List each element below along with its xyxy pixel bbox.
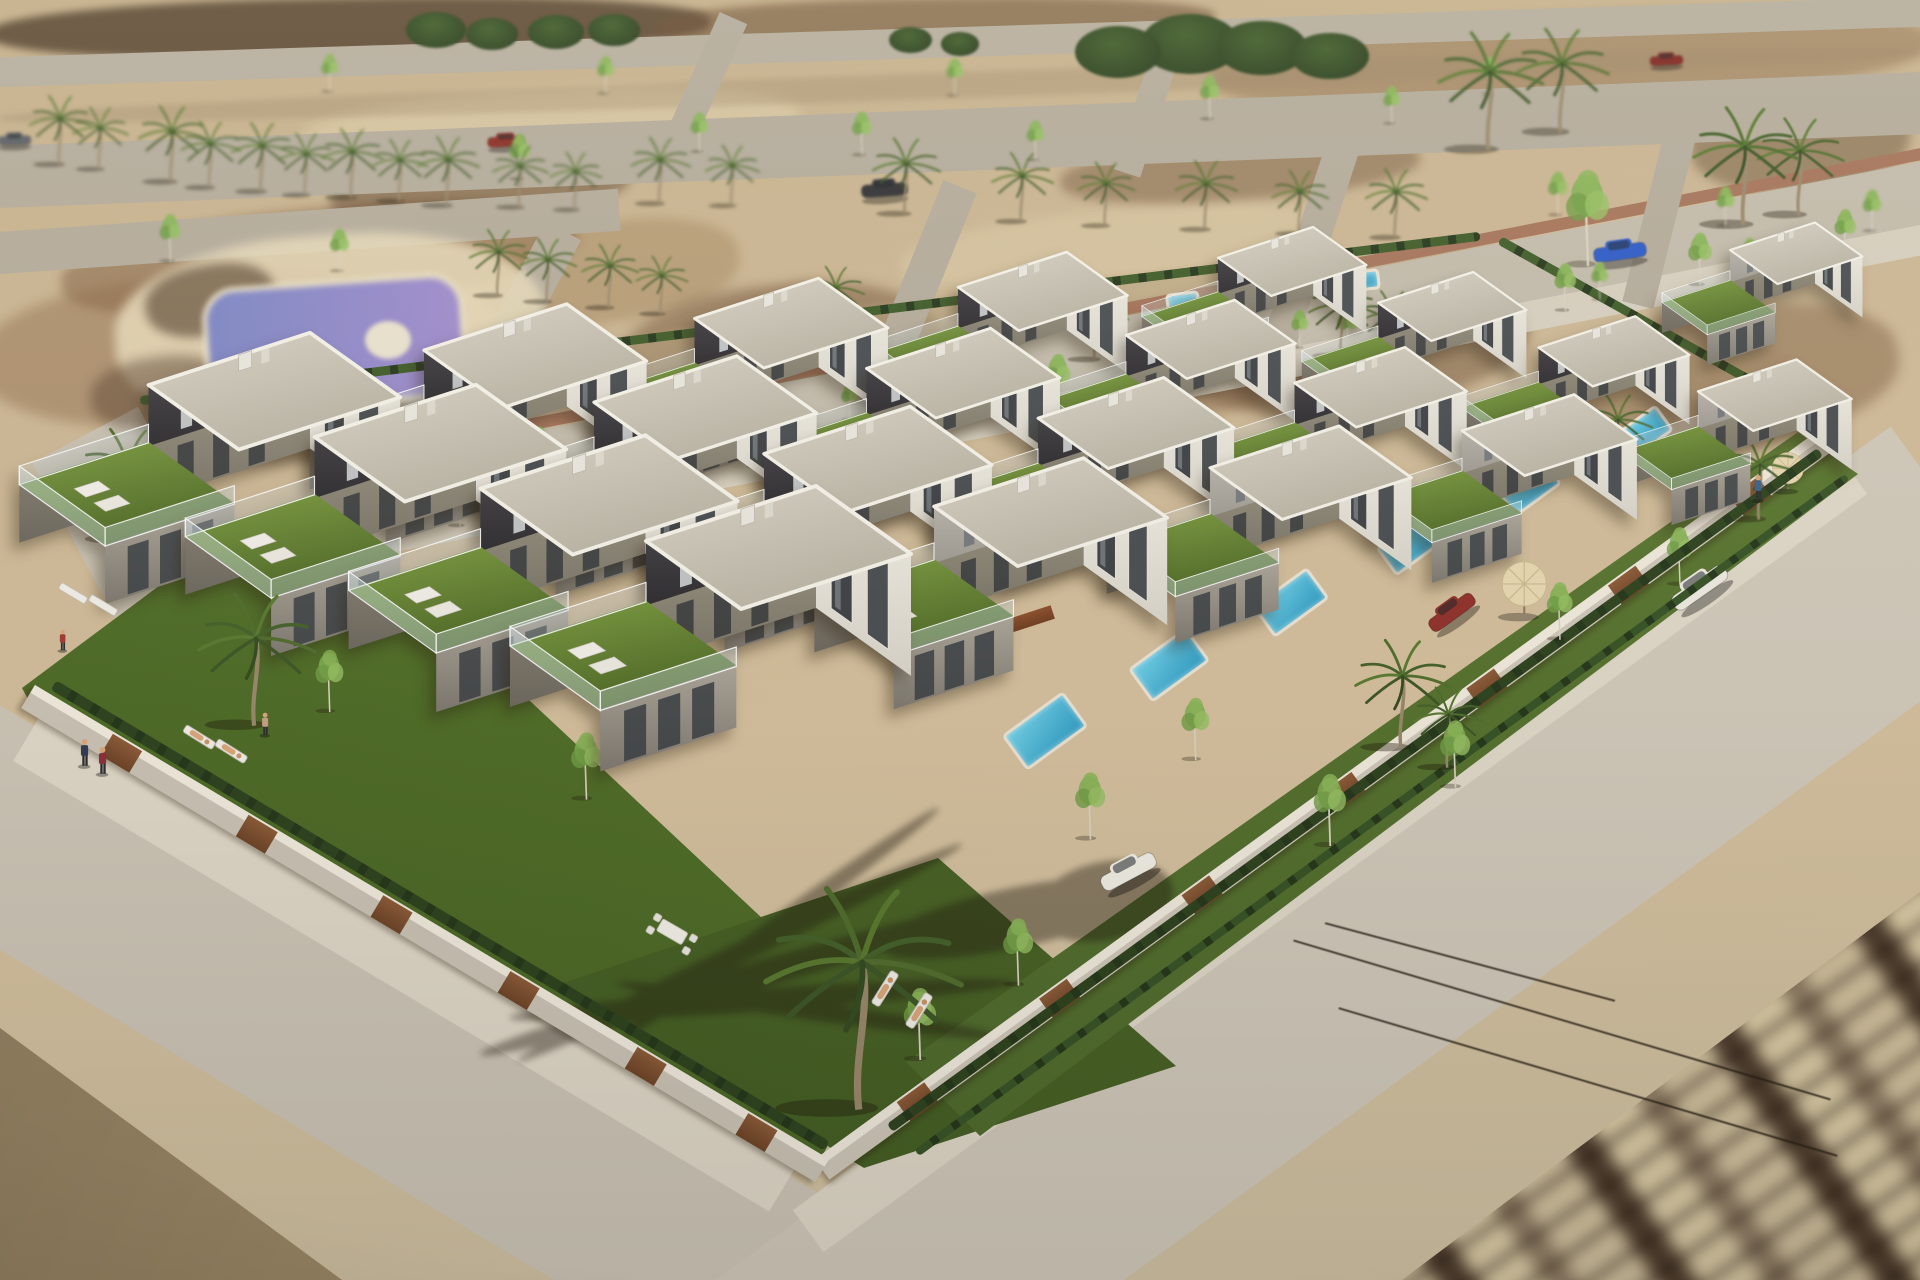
birch-tree	[153, 208, 188, 263]
birch-tree	[1194, 70, 1226, 121]
road	[13, 715, 797, 1212]
road	[0, 189, 621, 276]
bush	[528, 15, 584, 49]
birch-tree	[1066, 764, 1115, 841]
corten-fence	[1001, 605, 1055, 634]
palm-tree	[1356, 165, 1436, 240]
landscape-blob	[182, 390, 417, 474]
birch-tree	[1586, 257, 1614, 301]
villa	[172, 361, 600, 676]
perimeter-wall	[815, 421, 1846, 1179]
palm-tree	[697, 142, 767, 208]
corten-fence	[1386, 483, 1429, 518]
villa	[1294, 258, 1546, 444]
birch-tree	[1548, 257, 1583, 312]
vignette-overlay	[0, 0, 1920, 1280]
palm-tree	[128, 102, 216, 185]
villa	[1363, 378, 1660, 597]
palm-tree	[734, 876, 990, 1116]
palm-tree	[1574, 390, 1662, 473]
birch-tree	[846, 106, 878, 157]
terrain-patch	[897, 188, 1322, 302]
villa	[585, 260, 914, 502]
birch-tree	[316, 49, 344, 93]
palm-tree	[1744, 113, 1856, 218]
lagoon-pool	[200, 271, 470, 415]
garden-lawn	[0, 0, 1920, 1280]
landscape-blob	[382, 358, 559, 441]
birch-tree	[1431, 712, 1480, 789]
palm-tree	[270, 130, 342, 198]
road	[663, 12, 747, 152]
birch-tree	[1450, 270, 1489, 332]
birch-tree	[1187, 322, 1226, 383]
birch-tree	[886, 372, 929, 440]
bush	[466, 18, 518, 49]
power-line	[1338, 1007, 1837, 1157]
birch-tree	[1436, 279, 1464, 323]
sun-lounger	[55, 578, 93, 610]
terrain-patch	[944, 282, 1336, 447]
birch-tree	[1736, 233, 1764, 277]
palm-tree	[862, 134, 950, 217]
birch-tree	[324, 223, 356, 273]
private-pool	[1345, 268, 1381, 293]
private-pool	[1128, 627, 1211, 703]
corten-fence	[1193, 542, 1240, 579]
bush	[588, 14, 640, 45]
villa	[335, 411, 772, 733]
palm-tree	[1263, 167, 1337, 236]
palm-tree	[64, 423, 192, 543]
garden-lawn	[0, 0, 1920, 1280]
birch-tree	[986, 355, 1014, 399]
birch-tree	[524, 421, 556, 471]
hedge	[139, 231, 1480, 404]
villa	[1030, 284, 1318, 496]
road	[0, 71, 1920, 209]
power-lines	[0, 0, 1920, 1280]
private-pool	[1496, 456, 1563, 518]
landscape-blob	[140, 254, 280, 346]
wall-face	[820, 429, 1845, 1180]
villa	[802, 436, 1198, 728]
road	[0, 700, 833, 1280]
birch-tree	[1539, 575, 1581, 641]
corten-wall-panel	[1182, 875, 1223, 914]
corten-wall-panel	[235, 815, 277, 854]
terrain-patch	[608, 268, 952, 452]
birch-tree	[1038, 347, 1079, 411]
birch-tree	[1330, 297, 1366, 354]
corten-wall-panel	[100, 734, 142, 773]
birch-tree	[592, 51, 620, 95]
palm-tree	[484, 142, 556, 210]
palm-tree	[408, 133, 488, 208]
birch-tree	[441, 467, 480, 528]
bush	[1291, 33, 1368, 80]
person	[76, 737, 92, 769]
birch-tree	[1476, 52, 1504, 96]
villa	[1096, 407, 1438, 659]
birch-tree	[1021, 115, 1050, 161]
private-pool	[1165, 290, 1201, 315]
birch-tree	[1681, 226, 1720, 287]
power-line	[1325, 922, 1615, 1002]
palm-tree	[982, 149, 1062, 224]
sun-lounger	[210, 734, 253, 770]
terrain-patch	[0, 260, 425, 440]
birch-tree	[307, 642, 353, 714]
road	[1114, 26, 1187, 177]
villa	[1453, 302, 1710, 491]
palm-tree	[1352, 287, 1432, 362]
villa	[298, 283, 676, 562]
palm-tree	[364, 136, 436, 204]
villa	[6, 309, 434, 624]
road	[378, 160, 1920, 530]
car	[0, 128, 37, 153]
car	[1083, 835, 1174, 910]
terrain-patch	[0, 39, 1920, 132]
road	[383, 145, 1920, 458]
building-facade-stripes	[0, 0, 1920, 1280]
palm-tree	[1677, 101, 1813, 229]
car	[851, 172, 916, 209]
parasol	[1761, 452, 1815, 496]
road	[628, 426, 1920, 1280]
terrain-patch	[298, 77, 802, 183]
hedge	[914, 474, 1849, 1156]
desert-ground	[0, 0, 1920, 1280]
private-pool	[1252, 567, 1330, 639]
road	[0, 0, 1920, 88]
road	[853, 180, 976, 416]
palm-tree	[1712, 432, 1808, 522]
palm-tree	[460, 226, 537, 298]
private-pool	[1612, 404, 1674, 461]
terrain-patch	[1531, 283, 1908, 478]
birch-tree	[1711, 181, 1740, 227]
corten-wall-panel	[370, 895, 412, 934]
pool-complex-deck	[109, 220, 551, 440]
birch-tree	[994, 910, 1043, 987]
bush	[889, 27, 932, 53]
terrain-patch	[328, 147, 632, 233]
birch-tree	[1659, 520, 1701, 586]
palm-tree	[20, 92, 100, 167]
birch-tree	[1542, 166, 1574, 217]
private-pool	[1375, 511, 1447, 577]
birch-tree	[1828, 203, 1863, 258]
birch-tree	[591, 443, 626, 498]
corten-wall-panel	[1039, 979, 1080, 1018]
palm-tree	[622, 134, 699, 206]
bush	[1217, 21, 1307, 76]
perimeter-wall	[21, 685, 829, 1182]
terrain-patch	[1058, 128, 1421, 213]
palm-tree	[511, 235, 585, 304]
palm-tree	[1422, 26, 1558, 154]
terrain-patch	[655, 0, 1216, 51]
villa	[1655, 210, 1880, 376]
birch-tree	[674, 399, 706, 449]
corten-wall-panel	[1324, 772, 1365, 811]
birch-tree	[562, 724, 611, 801]
villa	[1134, 213, 1386, 399]
road	[32, 407, 298, 764]
bush	[1075, 26, 1161, 78]
road	[419, 221, 581, 478]
palm-tree	[172, 118, 249, 190]
villa	[1197, 331, 1490, 547]
bush	[1141, 14, 1240, 74]
palm-tree	[1502, 23, 1622, 136]
parasol	[1486, 561, 1563, 624]
car	[1652, 546, 1747, 631]
villa	[757, 310, 1086, 552]
birch-tree	[1136, 329, 1164, 373]
birch-tree	[941, 53, 969, 97]
scene-objects	[0, 0, 1920, 1280]
terrain-patch	[1183, 257, 1538, 433]
birch-tree	[1553, 158, 1623, 268]
road	[1260, 138, 1360, 358]
person	[56, 628, 69, 653]
corten-fence	[1577, 429, 1616, 460]
birch-tree	[1173, 690, 1219, 762]
palm-tree	[312, 125, 392, 200]
terrain-patch	[1208, 0, 1920, 124]
corten-wall-panel	[625, 1047, 667, 1086]
palm-tree	[628, 253, 695, 316]
terrain-patch	[0, 0, 710, 64]
villa	[496, 461, 946, 793]
palm-tree	[968, 272, 1056, 355]
birch-tree	[739, 403, 781, 469]
power-line	[1293, 940, 1831, 1101]
villa	[1611, 345, 1872, 538]
corten-wall-panel	[1466, 669, 1507, 708]
sun-lounger	[85, 590, 123, 622]
car	[1643, 47, 1689, 72]
palm-tree	[1402, 683, 1495, 770]
roof-fill	[0, 0, 1920, 1280]
car	[1412, 576, 1492, 648]
birch-tree	[894, 979, 947, 1062]
person	[1750, 473, 1765, 504]
wall-top	[815, 421, 1836, 1166]
birch-tree	[1304, 765, 1357, 848]
villa	[635, 385, 1022, 671]
sun-lounger	[900, 986, 940, 1034]
terrain-patch	[1497, 181, 1904, 309]
sun-lounger	[178, 720, 221, 756]
corten-wall-panel	[1730, 477, 1771, 516]
palm-tree	[180, 587, 332, 730]
birch-tree	[1857, 184, 1888, 232]
person	[94, 745, 110, 777]
villa	[468, 335, 846, 614]
car	[481, 128, 532, 156]
palm-tree	[1166, 157, 1246, 232]
corten-wall-panel	[497, 971, 539, 1010]
hedge	[1498, 236, 1843, 434]
terrain-patch	[1686, 81, 1914, 200]
birch-tree	[1378, 81, 1406, 125]
road-palm-shadow	[356, 747, 1223, 1189]
road	[1622, 107, 1701, 309]
birch-tree	[1286, 305, 1314, 349]
terrain-patch	[56, 181, 584, 335]
pool-island	[365, 321, 411, 359]
person	[258, 711, 272, 738]
wall-face	[21, 693, 824, 1182]
foreground-roof-blurred	[0, 0, 1920, 1280]
sun-lounger	[866, 964, 906, 1012]
palm-tree	[64, 104, 136, 172]
car	[1582, 229, 1658, 275]
hedge	[887, 448, 1823, 1132]
birch-tree	[503, 128, 537, 181]
aerial-development-render	[0, 0, 1920, 1280]
bush	[941, 32, 980, 55]
palm-tree	[1069, 159, 1143, 228]
corten-fence	[642, 494, 694, 523]
palm-tree	[1298, 276, 1386, 359]
birch-tree	[836, 377, 864, 421]
palm-tree	[799, 263, 873, 332]
building-window-rows	[0, 0, 1920, 1280]
terrain-patch	[474, 204, 745, 339]
wall-top	[30, 685, 829, 1167]
private-pool	[1001, 691, 1088, 771]
palm-tree	[573, 241, 647, 310]
hedge	[51, 680, 830, 1150]
landscape-blob	[86, 348, 234, 437]
road	[372, 225, 1920, 556]
road	[793, 452, 1867, 1252]
apartment-building-blurred	[0, 0, 1920, 1280]
birch-tree	[685, 107, 714, 153]
palm-tree	[222, 119, 302, 194]
palm-tree	[542, 149, 609, 212]
palm-tree	[1340, 634, 1465, 751]
garden-lawn	[0, 0, 1920, 1280]
villa	[862, 236, 1150, 448]
corten-wall-panel	[736, 1113, 778, 1152]
palm-tree	[1054, 284, 1137, 362]
private-pool	[985, 312, 1021, 337]
corten-wall-panel	[1608, 565, 1649, 604]
terrain-patch	[321, 227, 1519, 433]
villa	[927, 359, 1260, 605]
corten-wall-panel	[897, 1082, 938, 1121]
bush	[406, 12, 466, 48]
corten-fence	[809, 544, 867, 577]
dining-set	[628, 892, 716, 972]
